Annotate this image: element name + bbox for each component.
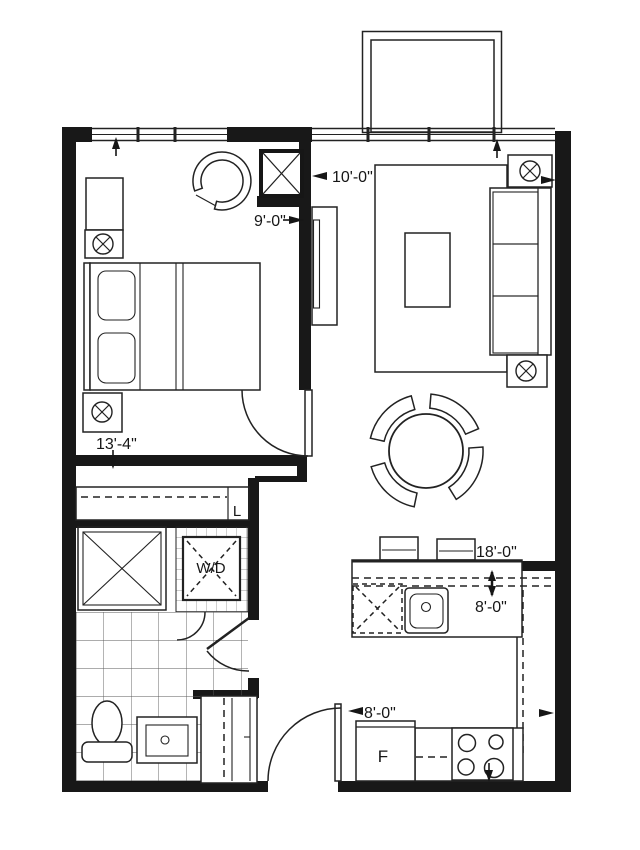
dresser xyxy=(86,178,123,230)
laundry-alcove: W/D xyxy=(176,527,248,612)
floor-plan-page: F L W/D xyxy=(0,0,640,850)
lamp-icon xyxy=(92,402,112,422)
vanity-sink xyxy=(137,717,197,763)
tv-console xyxy=(312,207,337,325)
column-shaft xyxy=(261,151,302,196)
sofa xyxy=(490,188,551,355)
living-width-label: 10'-0" xyxy=(332,169,373,186)
lamp-icon xyxy=(93,234,113,254)
kitchen-width-label: 8'-0" xyxy=(364,705,396,722)
floor-plan-svg: F L W/D xyxy=(0,0,640,850)
fridge-label: F xyxy=(378,747,388,766)
bed xyxy=(84,263,260,390)
washer-dryer-label: W/D xyxy=(196,560,225,577)
dining-table xyxy=(389,414,463,488)
window-band-living xyxy=(312,127,555,142)
bedroom-length-label: 13'-4" xyxy=(96,436,137,453)
entry-closet xyxy=(201,696,257,783)
stove xyxy=(452,728,513,780)
coffee-table xyxy=(405,233,450,307)
lamp-icon xyxy=(516,361,536,381)
bedroom-width-label: 9'-0" xyxy=(254,213,286,230)
fridge: F xyxy=(356,721,415,781)
window-band-bedroom xyxy=(90,127,227,142)
kitchen-sink xyxy=(405,588,448,633)
overall-length-label: 18'-0" xyxy=(476,544,517,561)
kitchen-depth-label: 8'-0" xyxy=(475,599,507,616)
lamp-icon xyxy=(520,161,540,181)
linen-closet-label: L xyxy=(233,503,241,520)
